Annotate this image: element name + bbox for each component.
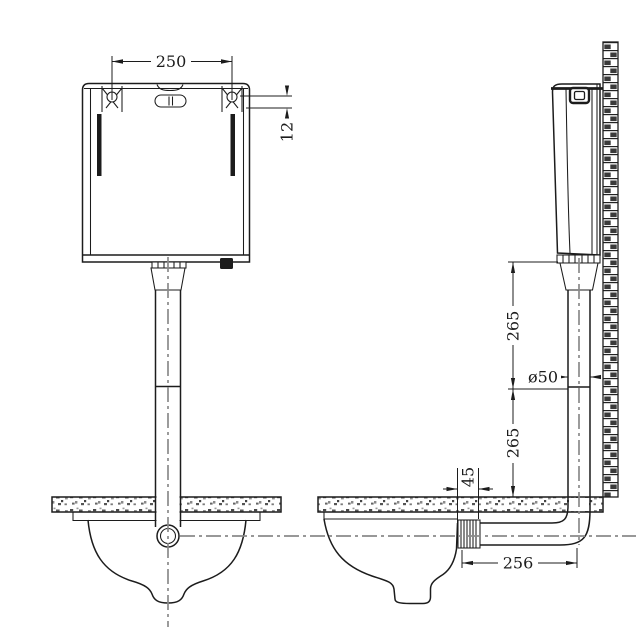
dim-265-lower-label: 265 — [504, 428, 523, 459]
pipe-elbow-outer — [480, 510, 590, 545]
pan-profile-side — [324, 519, 458, 604]
wall — [603, 42, 618, 497]
pan-rim-side — [324, 512, 458, 519]
handle-slot — [155, 95, 186, 107]
dim-250-label: 250 — [156, 52, 187, 71]
dim-256-label: 256 — [503, 554, 534, 573]
dim-diameter-label: ø50 — [528, 368, 558, 387]
wall-hatch — [603, 42, 618, 497]
pan-inlet-spigot — [458, 520, 480, 548]
cistern-front-outline — [83, 84, 250, 263]
front-view: 250 12 — [52, 52, 297, 627]
floor-slab-side — [318, 497, 603, 512]
dim-45-label: 45 — [459, 467, 478, 487]
cistern-front — [83, 84, 250, 291]
dim-inlet-offset: 256 — [462, 548, 577, 573]
cistern-side-outline — [553, 84, 601, 255]
inlet-valve-front — [220, 258, 233, 269]
floor-slab-side-band — [318, 497, 603, 512]
flush-button — [570, 88, 589, 103]
cistern-side — [551, 84, 603, 290]
dim-265-upper-label: 265 — [504, 311, 523, 342]
squat-pan-side — [324, 512, 458, 604]
side-slot-right — [231, 114, 236, 176]
dim-inlet-socket: 45 — [443, 467, 493, 523]
side-slot-left — [97, 114, 102, 176]
dim-12-label: 12 — [278, 122, 297, 142]
technical-drawing: 250 12 — [0, 0, 640, 633]
